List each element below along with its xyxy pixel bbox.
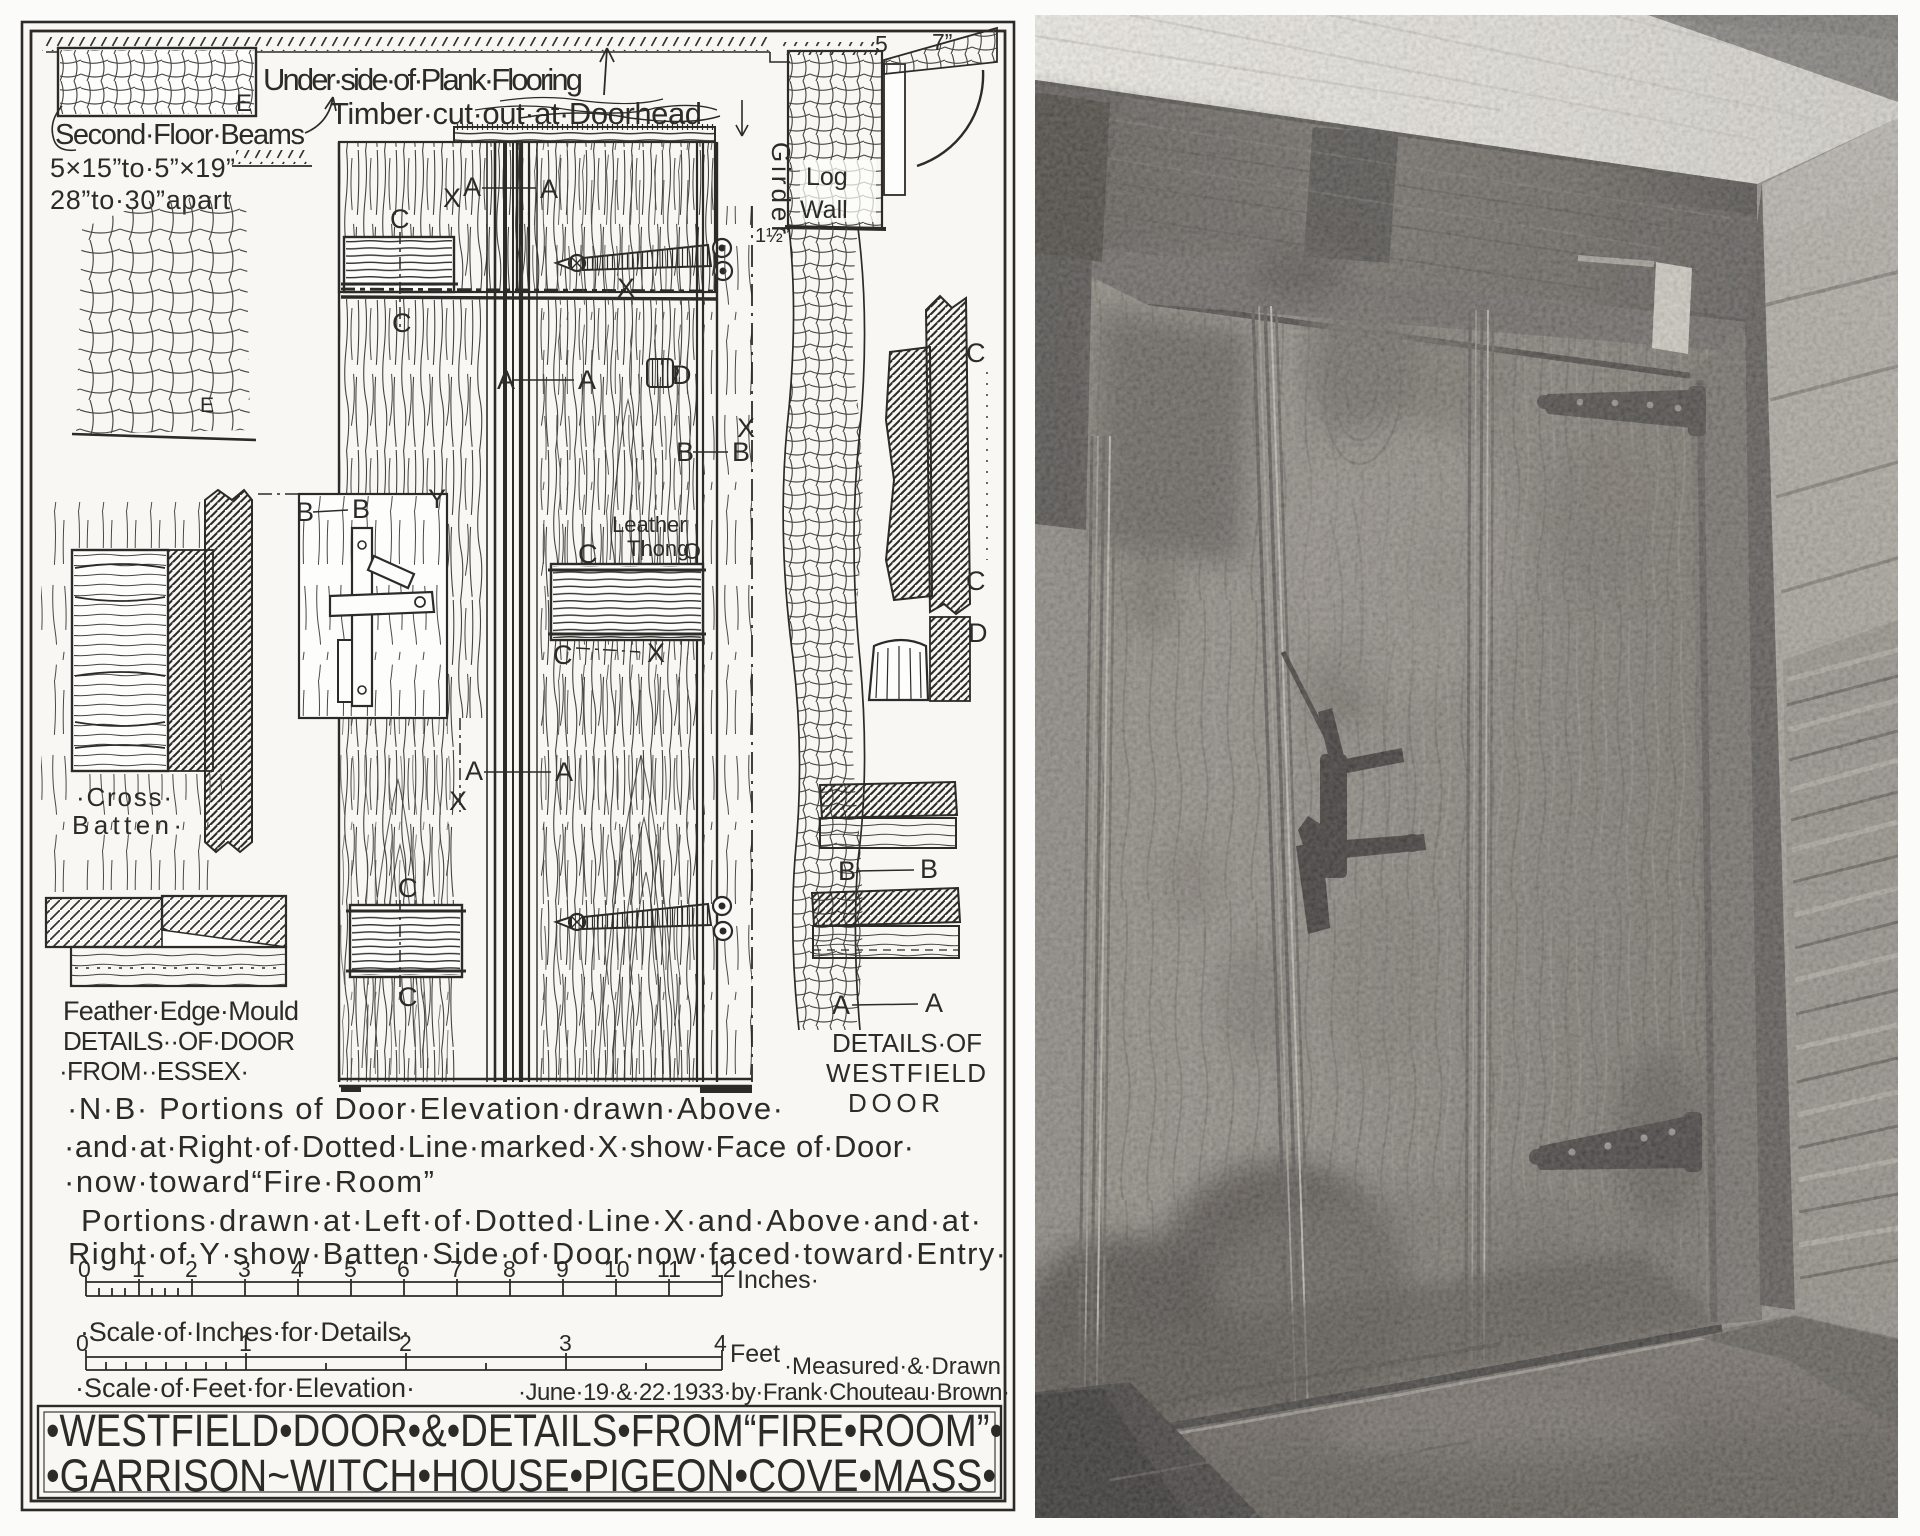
svg-text:1: 1 (239, 1330, 252, 1356)
svg-text:X: X (617, 273, 635, 303)
svg-text:12: 12 (710, 1256, 736, 1282)
svg-text:X: X (443, 183, 461, 213)
svg-text:C: C (553, 640, 573, 670)
svg-text:Under·side·of·Plank·Flooring: Under·side·of·Plank·Flooring (263, 62, 583, 97)
svg-text:Second·Floor·Beams: Second·Floor·Beams (55, 119, 305, 151)
svg-text:3: 3 (238, 1256, 251, 1282)
svg-text:B: B (676, 437, 694, 467)
svg-text:B: B (732, 437, 750, 467)
svg-text:Feet: Feet (730, 1340, 780, 1368)
svg-text:A: A (578, 365, 596, 395)
svg-text:2: 2 (399, 1330, 412, 1356)
svg-text:7”: 7” (932, 29, 952, 55)
svg-text:Thong: Thong (627, 536, 689, 561)
svg-text:·now·toward“Fire·Room”: ·now·toward“Fire·Room” (64, 1164, 434, 1199)
svg-text:A: A (832, 990, 850, 1020)
svg-text:5: 5 (344, 1256, 357, 1282)
svg-text:A: A (497, 365, 515, 395)
svg-text:A: A (555, 757, 573, 787)
svg-text:0: 0 (76, 1330, 89, 1356)
svg-text:5×15”to·5”×19”: 5×15”to·5”×19” (50, 153, 235, 183)
svg-text:1: 1 (132, 1256, 145, 1282)
svg-text:Right·of·Y·show·Batten·Side·of: Right·of·Y·show·Batten·Side·of·Door·now·… (68, 1236, 1006, 1271)
svg-text:D: D (672, 360, 692, 390)
svg-text:Inches·: Inches· (737, 1266, 819, 1294)
svg-text:·Cross·: ·Cross· (76, 782, 172, 812)
svg-text:9: 9 (556, 1256, 569, 1282)
svg-text:2: 2 (185, 1256, 198, 1282)
svg-text:Y: Y (428, 484, 446, 514)
svg-text:Batten·: Batten· (72, 810, 182, 840)
svg-text:C: C (578, 539, 598, 569)
svg-text:C: C (398, 873, 418, 903)
svg-text:C: C (398, 982, 418, 1012)
svg-text:4: 4 (714, 1330, 727, 1356)
svg-text:Portions·drawn·at·Left·of·Dott: Portions·drawn·at·Left·of·Dotted·Line·X·… (81, 1203, 981, 1238)
svg-text:·Scale·of·Feet·for·Elevation·: ·Scale·of·Feet·for·Elevation· (75, 1373, 415, 1403)
svg-text:C: C (390, 204, 410, 234)
svg-text:A: A (463, 172, 481, 202)
svg-text:B: B (920, 854, 938, 884)
svg-text:Log: Log (806, 163, 848, 191)
svg-text:7: 7 (450, 1256, 463, 1282)
svg-text:A: A (925, 988, 943, 1018)
svg-text:A: A (465, 756, 483, 786)
svg-text:D: D (968, 618, 988, 648)
svg-text:•WESTFIELD•DOOR•&•DETAILS•FROM: •WESTFIELD•DOOR•&•DETAILS•FROM“FIRE•ROOM… (46, 1405, 1003, 1456)
svg-text:11: 11 (657, 1256, 681, 1282)
svg-text:0: 0 (78, 1256, 91, 1282)
svg-text:X: X (647, 638, 665, 668)
svg-text:·and·at·Right·of·Dotted·Line·m: ·and·at·Right·of·Dotted·Line·marked·X·sh… (64, 1129, 914, 1164)
svg-text:C: C (966, 566, 986, 596)
svg-text:8: 8 (503, 1256, 516, 1282)
svg-text:C: C (966, 338, 986, 368)
svg-text:DETAILS··OF·DOOR: DETAILS··OF·DOOR (63, 1026, 295, 1056)
svg-text:•GARRISON~WITCH•HOUSE•PIGEON•C: •GARRISON~WITCH•HOUSE•PIGEON•COVE•MASS• (46, 1450, 996, 1501)
svg-text:6: 6 (397, 1256, 410, 1282)
svg-text:4: 4 (291, 1256, 304, 1282)
svg-text:·June·19·&·22·1933·by·Frank·Ch: ·June·19·&·22·1933·by·Frank·Chouteau·Bro… (518, 1379, 1010, 1406)
svg-text:1½”: 1½” (755, 225, 789, 247)
svg-text:10: 10 (604, 1256, 630, 1282)
svg-text:E: E (200, 394, 214, 417)
svg-text:Leather: Leather (612, 512, 687, 537)
svg-text:·Measured·&·Drawn·: ·Measured·&·Drawn· (784, 1353, 1009, 1380)
svg-text:A: A (540, 174, 558, 204)
svg-text:WESTFIELD: WESTFIELD (826, 1058, 986, 1088)
svg-text:Wall: Wall (800, 196, 848, 224)
svg-text:5: 5 (875, 31, 888, 57)
svg-text:B: B (352, 494, 370, 524)
svg-text:E: E (236, 90, 252, 117)
svg-text:B: B (296, 497, 314, 527)
svg-text:X: X (449, 786, 467, 816)
svg-text:C: C (392, 308, 412, 338)
svg-text:DETAILS·OF: DETAILS·OF (832, 1028, 982, 1058)
svg-text:·FROM··ESSEX·: ·FROM··ESSEX· (59, 1056, 249, 1086)
svg-text:3: 3 (559, 1330, 572, 1356)
svg-text:B: B (838, 856, 856, 886)
svg-text:Feather·Edge·Mould: Feather·Edge·Mould (63, 996, 299, 1026)
